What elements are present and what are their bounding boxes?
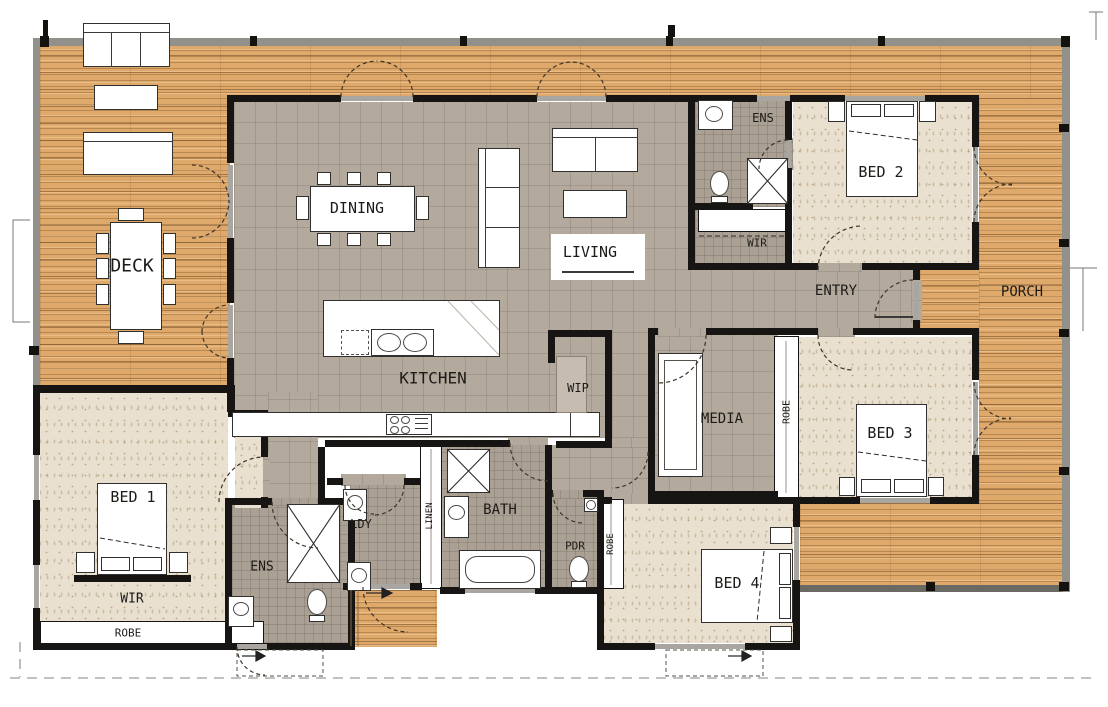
deck-chair: [118, 331, 144, 344]
rail-post: [1059, 329, 1069, 337]
room-label-bath: BATH: [483, 502, 517, 518]
wall: [972, 455, 979, 500]
sofa-divider: [595, 138, 596, 172]
washer-drum: [351, 568, 367, 583]
rail-post: [1059, 124, 1069, 132]
dining-chair: [377, 233, 391, 246]
doorway-patch: [610, 438, 650, 448]
doorway-patch: [658, 328, 708, 337]
lounge-back-line: [83, 141, 173, 142]
room-label-bed2: BED 2: [858, 163, 903, 181]
room-label-bed4: BED 4: [714, 574, 759, 592]
pillow: [779, 587, 791, 619]
wall: [545, 445, 552, 590]
room-label-wir2: WIR: [747, 237, 767, 250]
window: [34, 455, 39, 500]
window: [341, 96, 413, 101]
front-door-leaf: [875, 316, 913, 318]
wall: [706, 328, 775, 335]
sink-bowl: [377, 333, 401, 352]
deck-chair: [96, 258, 109, 279]
rail-post: [460, 36, 467, 46]
dining-chair: [296, 196, 309, 220]
dining-chair: [317, 233, 331, 246]
step-landing-dashed: [237, 650, 763, 676]
deck-chair: [118, 208, 144, 221]
rail-post: [1059, 239, 1069, 247]
room-label-wir1: WIR: [120, 592, 143, 607]
rail-post: [250, 36, 257, 46]
wall: [785, 100, 792, 140]
toilet: [710, 171, 729, 196]
window: [655, 644, 745, 649]
wall: [695, 203, 753, 210]
sink-bowl: [403, 333, 427, 352]
room-label-ens2: ENS: [752, 111, 774, 125]
toilet-tank: [571, 581, 587, 588]
bedside-table: [770, 527, 792, 544]
wall: [33, 500, 40, 565]
room-label-kitchen: KITCHEN: [399, 369, 466, 388]
bedside-table: [770, 626, 792, 642]
wall: [227, 238, 234, 303]
doorway-patch: [551, 490, 585, 499]
room-label-ens1: ENS: [250, 560, 273, 575]
doorway-patch: [818, 263, 862, 272]
window: [757, 96, 790, 101]
wall: [227, 95, 341, 102]
wall: [348, 590, 355, 650]
porch-floor-entry-notch: [920, 268, 979, 335]
deck-ottoman: [94, 85, 158, 110]
deck-chair: [163, 258, 176, 279]
deck-chair: [96, 233, 109, 254]
bedside-table: [919, 101, 936, 122]
room-label-robe1: ROBE: [115, 627, 142, 640]
wall: [688, 95, 695, 270]
coffee-table: [563, 190, 627, 218]
deck-floor-bottom-right: [800, 503, 1063, 586]
wall: [227, 95, 234, 163]
rail-post: [666, 36, 673, 46]
wall: [604, 497, 612, 504]
wall: [548, 330, 612, 337]
rail-post: [1061, 36, 1070, 47]
basin: [586, 500, 596, 510]
wall: [548, 330, 555, 363]
door-threshold: [237, 644, 267, 649]
wall: [33, 385, 235, 393]
room-label-linen: LINEN: [425, 502, 435, 529]
dining-chair: [347, 233, 361, 246]
wall: [785, 210, 792, 265]
wall: [648, 497, 800, 504]
dishwasher: [341, 330, 369, 355]
dining-chair: [347, 172, 361, 185]
living-underline: [562, 271, 634, 273]
wall: [913, 268, 920, 280]
rail-post: [668, 25, 675, 37]
shower: [287, 504, 340, 583]
bench-divider: [570, 413, 571, 436]
glass-door: [228, 165, 233, 238]
wall: [404, 478, 420, 485]
glass-door: [973, 147, 978, 222]
deck-chair: [163, 233, 176, 254]
pillow: [779, 553, 791, 585]
dining-chair: [416, 196, 429, 220]
pillow: [133, 557, 162, 571]
rail-post: [43, 20, 48, 37]
deck-rail-top: [40, 38, 1070, 46]
bed1-headboard: [74, 575, 191, 582]
rail-post: [926, 582, 935, 591]
bedside-table: [169, 552, 188, 573]
basin: [448, 505, 465, 520]
oven-line: [415, 423, 428, 424]
shower: [447, 449, 490, 493]
room-label-entry: ENTRY: [815, 283, 857, 299]
pillow: [101, 557, 130, 571]
entry-hall-floor: [690, 268, 915, 333]
burner: [390, 426, 399, 434]
sofa-divider: [111, 33, 112, 67]
deck-chair: [163, 284, 176, 305]
wall: [597, 643, 655, 650]
toilet-tank: [309, 615, 325, 622]
wall: [688, 263, 818, 270]
toilet: [569, 556, 589, 582]
trough-bowl: [347, 495, 363, 510]
bedside-table: [839, 477, 855, 496]
bathtub-inner: [465, 556, 535, 583]
wall: [327, 478, 343, 485]
doorway-patch: [818, 328, 855, 337]
room-label-living: LIVING: [563, 243, 617, 261]
deck-rail-left: [33, 38, 40, 392]
media-unit-inner: [664, 360, 697, 470]
toilet: [307, 589, 327, 615]
wall: [972, 95, 979, 147]
pillow: [894, 479, 924, 493]
burner: [401, 426, 410, 434]
wall: [648, 335, 655, 498]
front-door-threshold: [914, 282, 919, 320]
wall: [648, 328, 658, 335]
pillow: [861, 479, 891, 493]
room-label-robe4: ROBE: [606, 533, 616, 555]
room-label-media: MEDIA: [701, 411, 743, 427]
room-label-porch: PORCH: [1001, 284, 1043, 300]
wall: [413, 95, 537, 102]
wall: [33, 385, 40, 455]
sofa-divider: [140, 33, 141, 67]
wall: [410, 583, 422, 590]
wall: [793, 497, 800, 527]
sofa-back-line: [485, 148, 486, 268]
wall: [548, 587, 604, 594]
oven-line: [415, 428, 428, 429]
wall: [606, 95, 757, 102]
window: [34, 565, 39, 608]
wall: [605, 330, 612, 448]
bedside-table: [928, 477, 944, 496]
room-label-robe3: ROBE: [782, 400, 793, 424]
wall: [930, 497, 979, 504]
dining-chair: [377, 172, 391, 185]
room-label-wip: WIP: [567, 381, 589, 395]
basin: [233, 602, 249, 616]
rail-post: [1059, 467, 1069, 475]
room-label-bed3: BED 3: [867, 424, 912, 442]
wir2-shelf: [698, 209, 788, 232]
deck-sofa: [83, 23, 170, 67]
sofa-back-line: [83, 32, 170, 33]
dining-chair: [317, 172, 331, 185]
bedside-table: [828, 101, 845, 122]
shower: [747, 158, 788, 204]
burner: [390, 416, 399, 424]
window: [537, 96, 606, 101]
rail-post: [29, 346, 39, 355]
glass-door: [228, 305, 233, 358]
room-label-bed1: BED 1: [110, 488, 155, 506]
window: [860, 498, 930, 503]
pillow: [884, 104, 914, 117]
bedside-table: [76, 552, 95, 573]
wall: [597, 490, 604, 650]
wall: [972, 222, 979, 270]
deck-lounge: [83, 132, 173, 175]
burner: [401, 416, 410, 424]
deck-chair: [96, 284, 109, 305]
wall: [745, 643, 800, 650]
toilet-tank: [711, 196, 728, 203]
room-label-deck: DECK: [110, 256, 153, 277]
wall: [225, 498, 272, 505]
pillow: [851, 104, 881, 117]
oven-line: [415, 418, 428, 419]
wall: [325, 440, 510, 447]
sofa-divider: [486, 227, 520, 228]
wall: [548, 490, 553, 497]
rail-post: [878, 36, 885, 46]
wall: [267, 643, 355, 650]
wall: [318, 447, 325, 505]
wall: [775, 328, 818, 335]
floor-plan: DECK DINING LIVING KITCHEN WIP ENS WIR B…: [0, 0, 1108, 707]
wall: [918, 328, 979, 335]
sofa-divider: [486, 187, 520, 188]
rail-post: [40, 36, 49, 47]
corridor-floor: [268, 392, 318, 505]
laundry-landing-deck: [345, 590, 437, 647]
room-label-pdr: PDR: [565, 540, 585, 553]
basin: [705, 106, 723, 122]
deck-rail-right: [1062, 38, 1070, 592]
wall: [793, 580, 800, 650]
rail-post: [1059, 582, 1069, 591]
window: [794, 527, 799, 580]
wall: [225, 498, 232, 650]
room-label-ldy: LDY: [350, 517, 372, 531]
room-label-dining: DINING: [330, 199, 384, 217]
wall: [853, 328, 918, 335]
wall: [862, 263, 979, 270]
glass-door: [973, 382, 978, 455]
wall: [972, 335, 979, 380]
wall: [556, 441, 612, 448]
wall: [225, 643, 237, 650]
